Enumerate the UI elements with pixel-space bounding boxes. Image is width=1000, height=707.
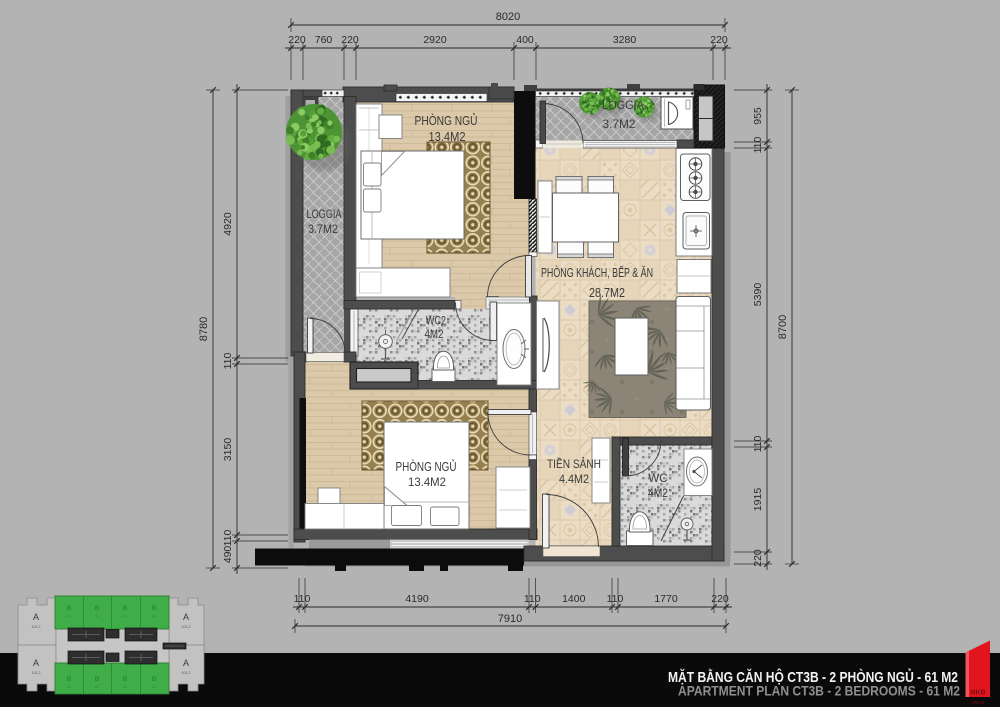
svg-text:1770: 1770 [654, 593, 678, 605]
svg-text:B: B [67, 676, 71, 683]
svg-text:B: B [152, 676, 156, 683]
svg-text:ARCHI: ARCHI [971, 700, 984, 705]
svg-text:1400: 1400 [562, 593, 586, 605]
svg-text:B: B [95, 605, 99, 612]
svg-text:8780: 8780 [198, 317, 210, 341]
svg-text:PHÒNG NGỦ: PHÒNG NGỦ [396, 459, 457, 474]
svg-text:61: 61 [123, 614, 127, 618]
svg-text:PHÒNG KHÁCH, BẾP & ĂN: PHÒNG KHÁCH, BẾP & ĂN [541, 265, 653, 280]
svg-text:61: 61 [95, 685, 99, 689]
svg-text:101.2: 101.2 [32, 625, 41, 629]
svg-text:3.7M2: 3.7M2 [603, 119, 636, 131]
svg-text:110: 110 [222, 529, 234, 546]
svg-text:WC: WC [648, 473, 667, 485]
svg-text:61: 61 [67, 614, 71, 618]
svg-text:4M2: 4M2 [648, 488, 668, 500]
svg-text:61: 61 [152, 614, 156, 618]
svg-text:4190: 4190 [405, 593, 429, 605]
svg-text:490: 490 [222, 546, 234, 564]
svg-text:400: 400 [516, 34, 534, 46]
svg-text:110: 110 [222, 352, 234, 369]
svg-text:8020: 8020 [496, 11, 520, 23]
svg-text:TIỀN SẢNH: TIỀN SẢNH [547, 456, 601, 471]
svg-text:4M2: 4M2 [425, 329, 444, 341]
svg-text:4.4M2: 4.4M2 [559, 474, 589, 486]
svg-text:A: A [183, 658, 189, 668]
svg-text:5390: 5390 [752, 283, 764, 307]
svg-text:NKB: NKB [970, 690, 985, 697]
svg-text:220: 220 [752, 549, 764, 567]
svg-text:13.4M2: 13.4M2 [408, 475, 446, 489]
svg-text:B: B [123, 676, 127, 683]
svg-text:220: 220 [711, 593, 729, 605]
svg-text:PHÒNG NGỦ: PHÒNG NGỦ [415, 113, 478, 128]
svg-text:110: 110 [294, 593, 311, 605]
svg-text:B: B [152, 605, 156, 612]
svg-text:7910: 7910 [498, 613, 522, 625]
svg-text:LOGGIA: LOGGIA [602, 100, 644, 112]
svg-text:61: 61 [67, 685, 71, 689]
svg-text:WC2: WC2 [426, 316, 446, 328]
svg-text:13.4M2: 13.4M2 [429, 130, 466, 144]
svg-text:A: A [33, 658, 39, 668]
svg-text:3.7M2: 3.7M2 [308, 224, 338, 236]
svg-text:61: 61 [152, 685, 156, 689]
svg-text:110: 110 [752, 435, 764, 452]
svg-text:B: B [67, 605, 71, 612]
svg-text:61: 61 [123, 685, 127, 689]
svg-text:8700: 8700 [777, 315, 789, 339]
svg-text:101.2: 101.2 [182, 625, 191, 629]
svg-text:A: A [33, 612, 39, 622]
svg-text:B: B [95, 676, 99, 683]
svg-text:220: 220 [710, 34, 728, 46]
svg-text:760: 760 [315, 34, 333, 46]
svg-text:220: 220 [288, 34, 306, 46]
svg-text:B: B [123, 605, 127, 612]
svg-text:A: A [183, 612, 189, 622]
svg-text:110: 110 [752, 136, 764, 153]
svg-text:3150: 3150 [222, 438, 234, 462]
svg-text:110: 110 [607, 593, 624, 605]
svg-text:955: 955 [752, 107, 764, 125]
svg-text:2920: 2920 [423, 34, 447, 46]
svg-text:4920: 4920 [222, 212, 234, 236]
svg-text:APARTMENT PLAN CT3B - 2 BEDROO: APARTMENT PLAN CT3B - 2 BEDROOMS - 61 M2 [678, 683, 960, 699]
svg-text:28.7M2: 28.7M2 [589, 286, 625, 300]
svg-text:110: 110 [524, 593, 541, 605]
svg-text:3280: 3280 [613, 34, 637, 46]
svg-text:101.2: 101.2 [182, 671, 191, 675]
svg-text:220: 220 [341, 34, 359, 46]
svg-text:101.2: 101.2 [32, 671, 41, 675]
svg-text:LOGGIA: LOGGIA [307, 209, 342, 221]
svg-text:1915: 1915 [752, 488, 764, 512]
svg-text:61: 61 [95, 614, 99, 618]
